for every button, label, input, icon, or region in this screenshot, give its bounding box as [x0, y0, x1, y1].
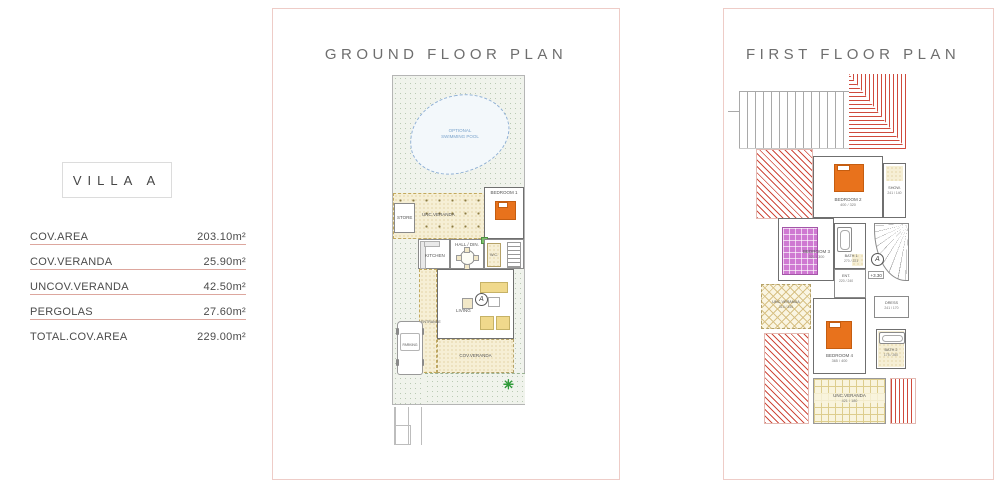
- room-bedroom-2: BEDROOM 2 400 / 320: [813, 156, 883, 218]
- area-value: 27.60m²: [204, 306, 246, 318]
- ground-floor-panel: GROUND FLOOR PLAN OPTIONAL SWIMMING POOL…: [272, 8, 620, 480]
- room-wc: W.C.: [487, 243, 501, 267]
- room-dim: 241 / 140: [884, 191, 905, 195]
- shower-floor: [886, 166, 903, 181]
- room-dim: 400 / 320: [814, 203, 882, 208]
- room-dim: 321 / 300: [803, 255, 830, 260]
- room-kitchen: KITCHEN: [418, 239, 450, 269]
- room-dim: 421 / 180: [814, 399, 885, 404]
- first-floor-panel: FIRST FLOOR PLAN BEDROOM 2 400 / 320: [723, 8, 994, 480]
- room-label: STORE: [397, 215, 412, 221]
- room-dim: 220 / 240: [839, 279, 853, 283]
- palm-plant-icon: ✳: [503, 378, 514, 391]
- bed-icon: [826, 321, 852, 349]
- roof-hatch: [756, 149, 813, 219]
- room-label: BEDROOM 2 400 / 320: [814, 197, 882, 207]
- sofa-icon: [480, 282, 508, 293]
- area-label: COV.AREA: [30, 231, 88, 243]
- room-entrance-hall: ENT. 220 / 240: [834, 269, 866, 298]
- roof-hatch: [849, 74, 906, 149]
- room-dim: 241 / 170: [875, 306, 908, 310]
- car-wheel-icon: [422, 328, 425, 335]
- room-label-text: BEDROOM 2: [834, 197, 861, 202]
- room-label-text: DRESS: [885, 301, 898, 305]
- room-label-text: BEDROOM 3: [803, 249, 830, 254]
- room-bedroom-1: BEDROOM 1: [484, 187, 524, 239]
- room-dim: 365 / 400: [814, 359, 865, 364]
- ground-floor-title: GROUND FLOOR PLAN: [273, 46, 619, 63]
- room-label: W.C.: [490, 253, 498, 258]
- villa-title: VILLA A: [73, 173, 161, 188]
- area-label: PERGOLAS: [30, 306, 93, 318]
- room-utility: W.C.: [484, 239, 524, 269]
- uncovered-veranda-bottom: UNC.VERANDA 421 / 180: [813, 378, 886, 424]
- room-label: UNC.VERANDA: [422, 212, 455, 218]
- table-row: COV.VERANDA 25.90m²: [30, 245, 246, 270]
- room-label: DRESS 241 / 170: [875, 301, 908, 310]
- room-label: PARKING: [398, 343, 422, 347]
- area-value: 229.00m²: [197, 331, 246, 343]
- table-row: TOTAL.COV.AREA 229.00m²: [30, 320, 246, 344]
- pergola-grid: [739, 91, 849, 149]
- room-bath-1: BATH 1 270 / 221: [834, 223, 866, 269]
- room-label-text: UNC.VERANDA: [772, 300, 800, 304]
- room-label: COV.VERANDA: [438, 353, 513, 359]
- room-label-text: BEDROOM 4: [826, 353, 853, 358]
- chair-icon: [473, 255, 479, 261]
- bathtub-icon: [837, 227, 852, 252]
- room-store: STORE: [394, 203, 415, 233]
- staircase: [507, 242, 521, 268]
- room-label: BATH 1 270 / 221: [844, 254, 858, 263]
- table-row: UNCOV.VERANDA 42.50m²: [30, 270, 246, 295]
- kitchen-counter-icon: [424, 241, 440, 247]
- room-living: LIVING: [437, 269, 514, 339]
- car-wheel-icon: [396, 328, 399, 335]
- room-bedroom-4: BEDROOM 4 365 / 400: [813, 298, 866, 374]
- car-icon: PARKING: [397, 321, 423, 375]
- area-label: COV.VERANDA: [30, 256, 112, 268]
- car-wheel-icon: [396, 359, 399, 366]
- room-label: BEDROOM 1: [485, 190, 523, 196]
- level-marker: +3.30: [868, 271, 884, 279]
- area-value: 25.90m²: [204, 256, 246, 268]
- covered-veranda: COV.VERANDA: [437, 339, 514, 373]
- villa-title-box: VILLA A: [62, 162, 172, 198]
- garden-strip: ✳: [425, 373, 525, 404]
- sofa-icon: [496, 316, 510, 330]
- sofa-icon: [480, 316, 494, 330]
- room-bath-2: BATH 2 175 / 260: [876, 329, 906, 369]
- room-label: BEDROOM 3 321 / 300: [803, 249, 830, 259]
- area-table: COV.AREA 203.10m² COV.VERANDA 25.90m² UN…: [30, 220, 246, 344]
- section-marker-a: A: [871, 253, 884, 266]
- bed-icon: [834, 164, 864, 192]
- uncovered-veranda-left: UNC.VERANDA 310 / 345: [761, 284, 811, 329]
- room-label-text: BATH 1: [845, 254, 858, 258]
- room-label: ENTRANCE: [421, 320, 441, 324]
- table-row: PERGOLAS 27.60m²: [30, 295, 246, 320]
- room-label-text: UNC.VERANDA: [833, 393, 866, 398]
- room-dim: 310 / 345: [762, 305, 810, 309]
- section-marker-letter: A: [875, 256, 880, 263]
- pool-label: OPTIONAL SWIMMING POOL: [438, 128, 482, 140]
- room-label: UNC.VERANDA 310 / 345: [762, 300, 810, 309]
- room-label: KITCHEN: [425, 253, 445, 259]
- area-label: UNCOV.VERANDA: [30, 281, 129, 293]
- ground-floor-plan: OPTIONAL SWIMMING POOL UNC.VERANDA STORE…: [389, 71, 541, 449]
- pergola-tick: [728, 111, 739, 112]
- first-floor-plan: BEDROOM 2 400 / 320 SHOW. 241 / 140 BEDR…: [734, 71, 924, 451]
- room-label: SHOW. 241 / 140: [884, 186, 905, 195]
- area-label: TOTAL.COV.AREA: [30, 331, 128, 343]
- section-marker-letter: A: [479, 296, 484, 303]
- room-dress: DRESS 241 / 170: [874, 296, 909, 318]
- room-dim: 175 / 260: [877, 353, 905, 357]
- roof-hatch: [764, 333, 809, 424]
- area-value: 42.50m²: [204, 281, 246, 293]
- roof-hatch-miter: [849, 74, 906, 149]
- armchair-icon: [462, 298, 473, 309]
- room-shower: SHOW. 241 / 140: [883, 163, 906, 218]
- coffee-table-icon: [488, 297, 500, 307]
- room-label-text: ENT.: [842, 274, 850, 278]
- table-row: COV.AREA 203.10m²: [30, 220, 246, 245]
- chair-icon: [456, 255, 462, 261]
- chair-icon: [464, 247, 470, 253]
- roof-hatch: [890, 378, 916, 424]
- room-label: BATH 2 175 / 260: [877, 348, 905, 357]
- room-label: UNC.VERANDA 421 / 180: [814, 393, 885, 403]
- section-marker-a: A: [475, 293, 488, 306]
- room-label: BEDROOM 4 365 / 400: [814, 353, 865, 363]
- page: VILLA A COV.AREA 203.10m² COV.VERANDA 25…: [0, 0, 1000, 487]
- room-label: ENT. 220 / 240: [839, 274, 853, 283]
- area-value: 203.10m²: [197, 231, 246, 243]
- gate-box: [395, 425, 411, 445]
- bathtub-icon: [879, 332, 905, 344]
- room-label-text: SHOW.: [888, 186, 901, 190]
- bed-icon: [495, 201, 516, 220]
- room-label-text: BATH 2: [884, 348, 897, 352]
- first-floor-title: FIRST FLOOR PLAN: [746, 46, 960, 63]
- room-hall-dining: HALL / DIN.: [450, 239, 484, 269]
- room-bedroom-3: BEDROOM 3 321 / 300: [778, 218, 834, 281]
- car-wheel-icon: [422, 359, 425, 366]
- room-dim: 270 / 221: [844, 259, 858, 263]
